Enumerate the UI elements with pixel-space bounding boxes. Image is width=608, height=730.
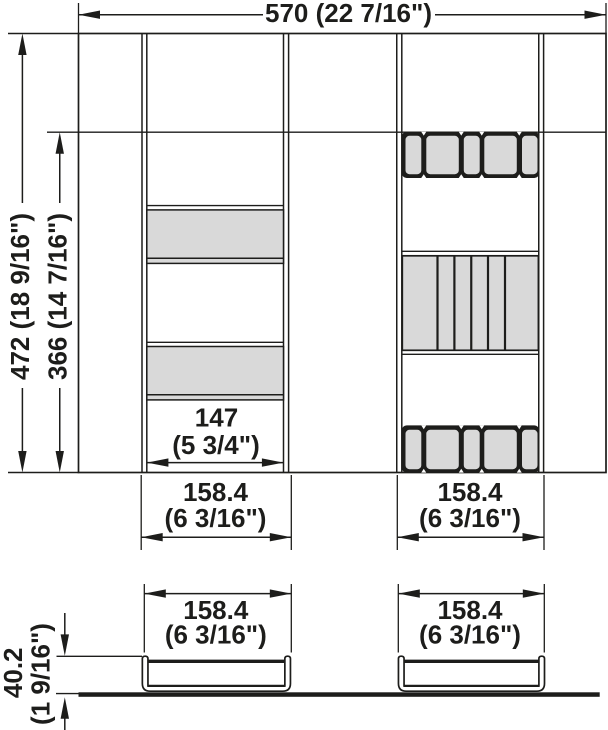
svg-text:366 (14 7/16"): 366 (14 7/16")	[42, 213, 72, 380]
svg-text:570 (22 7/16"): 570 (22 7/16")	[265, 0, 432, 28]
svg-text:(6 3/16"): (6 3/16")	[419, 503, 521, 533]
svg-text:(1 9/16"): (1 9/16")	[25, 623, 55, 725]
svg-text:(6 3/16"): (6 3/16")	[419, 619, 521, 649]
svg-text:(6 3/16"): (6 3/16")	[165, 503, 267, 533]
svg-text:(6 3/16"): (6 3/16")	[165, 619, 267, 649]
svg-text:472 (18 9/16"): 472 (18 9/16")	[5, 213, 35, 380]
svg-text:40.2: 40.2	[0, 647, 28, 698]
svg-text:147: 147	[195, 403, 238, 433]
svg-text:(5 3/4"): (5 3/4")	[172, 430, 259, 460]
